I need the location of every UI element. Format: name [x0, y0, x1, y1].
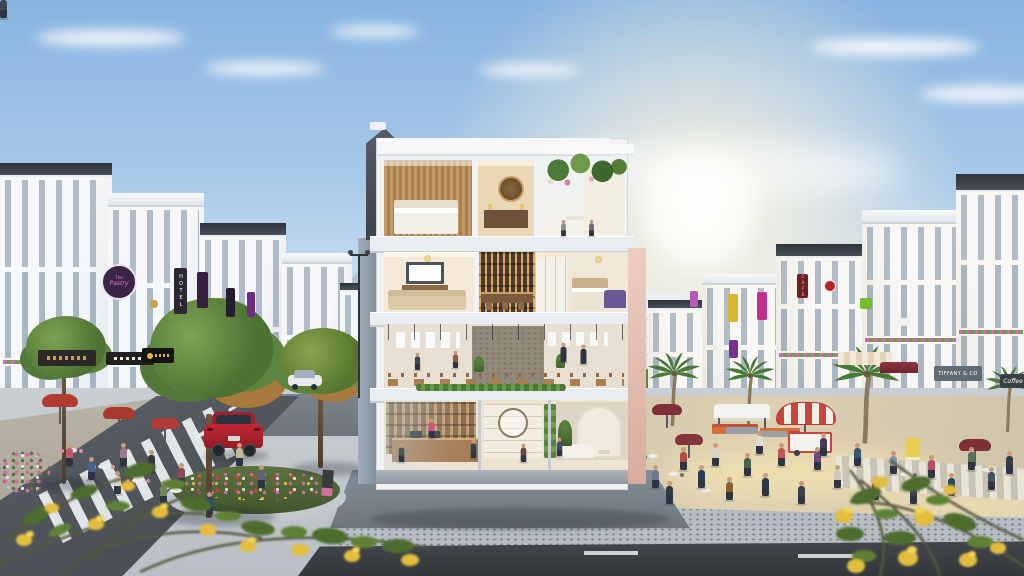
pastry-sign-text: Pastry: [110, 280, 129, 287]
storefront-sign-dark: [38, 350, 96, 366]
market-canopy-white: [714, 404, 770, 421]
floor-slab: [370, 236, 634, 253]
cloud: [205, 62, 325, 75]
banner-sign-magenta: [757, 292, 767, 320]
bar-stool: [518, 302, 524, 310]
arched-parapet: [282, 253, 352, 264]
green-square-sign: [860, 298, 872, 309]
sign-logo-dot: [147, 353, 153, 359]
banner-sign: [197, 272, 208, 308]
market-umbrella-striped: [776, 402, 836, 425]
window-band: [702, 285, 784, 348]
person: [680, 452, 687, 470]
banner-sign-pink: [690, 291, 698, 307]
hotel-vertical-sign: HOTEL: [174, 268, 187, 314]
person-coffeeshop: [471, 444, 477, 458]
mansard-roof: [0, 163, 112, 177]
person: [744, 458, 751, 476]
white-car-glass: [294, 370, 315, 378]
maroon-umbrella: [652, 404, 682, 415]
plaza-chair: [680, 473, 684, 477]
sunlit-side-wall: [628, 248, 646, 484]
banner-sign: [226, 288, 235, 317]
cloud: [810, 38, 980, 56]
palm-tree: [646, 348, 702, 432]
person-cafe-floor2: [453, 355, 458, 369]
person-coffeeshop: [521, 448, 527, 462]
storefront-sign-black-gold: [142, 348, 174, 363]
street-lamp-head: [365, 250, 370, 255]
cloud: [480, 64, 580, 76]
person: [756, 436, 763, 454]
person-terrace: [589, 223, 594, 236]
chandelier: [595, 256, 602, 263]
pastry-round-sign: The Pastry: [101, 264, 137, 300]
walk-in-closet: [535, 252, 567, 312]
person: [666, 486, 673, 504]
street-lamp-head: [348, 250, 353, 255]
person: [726, 482, 733, 500]
maroon-awning: [880, 362, 918, 373]
coffee-sign: Coffee: [1000, 374, 1024, 388]
foreground-branches-left: [0, 420, 460, 576]
shophouse-street-render: The Pastry HOTEL: [0, 0, 1024, 576]
white-car-wheel: [311, 384, 317, 390]
maroon-umbrella: [675, 434, 703, 445]
lane-dash: [584, 551, 638, 555]
bed: [394, 208, 458, 234]
banner-sign-purple: [729, 340, 738, 358]
white-car-wheel: [292, 384, 298, 390]
cafe-vertical-sign: CAFE: [797, 274, 808, 298]
cafe-plant: [474, 356, 484, 372]
slab-plant-strip: [416, 384, 566, 391]
sign-gold-text-blur: [47, 356, 88, 360]
candle: [520, 204, 524, 210]
purple-sofa: [604, 290, 626, 308]
person: [712, 448, 719, 466]
person: [798, 486, 805, 504]
arched-parapet: [702, 274, 784, 285]
gold-square-sign: [150, 300, 158, 308]
altar-medallion: [498, 176, 524, 202]
white-small-sign: [897, 318, 911, 326]
foreground-branches-right: [820, 430, 1024, 576]
person: [762, 478, 769, 496]
tiffany-sign: TIFFANY & CO: [934, 366, 982, 381]
person-cafe-floor2: [561, 347, 567, 362]
tower-cap: [370, 122, 386, 130]
mansard-roof: [200, 223, 286, 237]
cloud: [330, 26, 420, 37]
red-umbrella: [42, 394, 78, 407]
mansard-roof: [776, 244, 871, 258]
banner-sign: [247, 292, 255, 317]
plaza-table: [668, 472, 678, 476]
arched-parapet: [108, 193, 204, 207]
person-coffeeshop: [557, 442, 563, 456]
window-band: [0, 177, 112, 270]
terrace-table: [566, 216, 584, 220]
red-round-sign: [824, 280, 836, 292]
palm-tree: [984, 360, 1024, 440]
banner-sign-yellow: [728, 294, 738, 322]
terrace-hanging-plants: [538, 150, 630, 206]
tree-canopy: [26, 316, 106, 378]
person-terrace: [561, 223, 566, 236]
balcony-band: [956, 263, 1024, 334]
red-umbrella: [103, 407, 135, 419]
cafe-tables-row: [388, 360, 624, 386]
bar-stool: [486, 302, 492, 310]
pendant-lamp-cords: [388, 324, 624, 340]
bed: [572, 288, 608, 310]
bar-stool: [502, 302, 508, 310]
tv-panel: [406, 262, 444, 284]
window-band: [956, 192, 1024, 263]
cloud: [36, 30, 186, 46]
arched-parapet: [862, 210, 966, 224]
white-car: [288, 370, 322, 390]
street-lamp-pole: [358, 254, 360, 398]
person: [778, 448, 785, 466]
person-cafe-floor2: [581, 349, 587, 364]
person: [652, 470, 659, 488]
balcony-band: [862, 283, 966, 342]
mansard-roof: [956, 174, 1024, 192]
flower-planter: [712, 424, 758, 434]
window-band: [862, 224, 966, 283]
mansard-roof: [648, 300, 710, 310]
person: [0, 0, 7, 18]
sign-gold-text-blur: [155, 354, 169, 357]
person: [698, 470, 705, 488]
cart-wheel: [794, 450, 800, 456]
candle: [488, 204, 492, 210]
person-cafe-floor2: [415, 357, 420, 371]
sofa-beige: [388, 290, 466, 310]
chandelier: [424, 255, 431, 262]
altar-table: [484, 210, 528, 228]
